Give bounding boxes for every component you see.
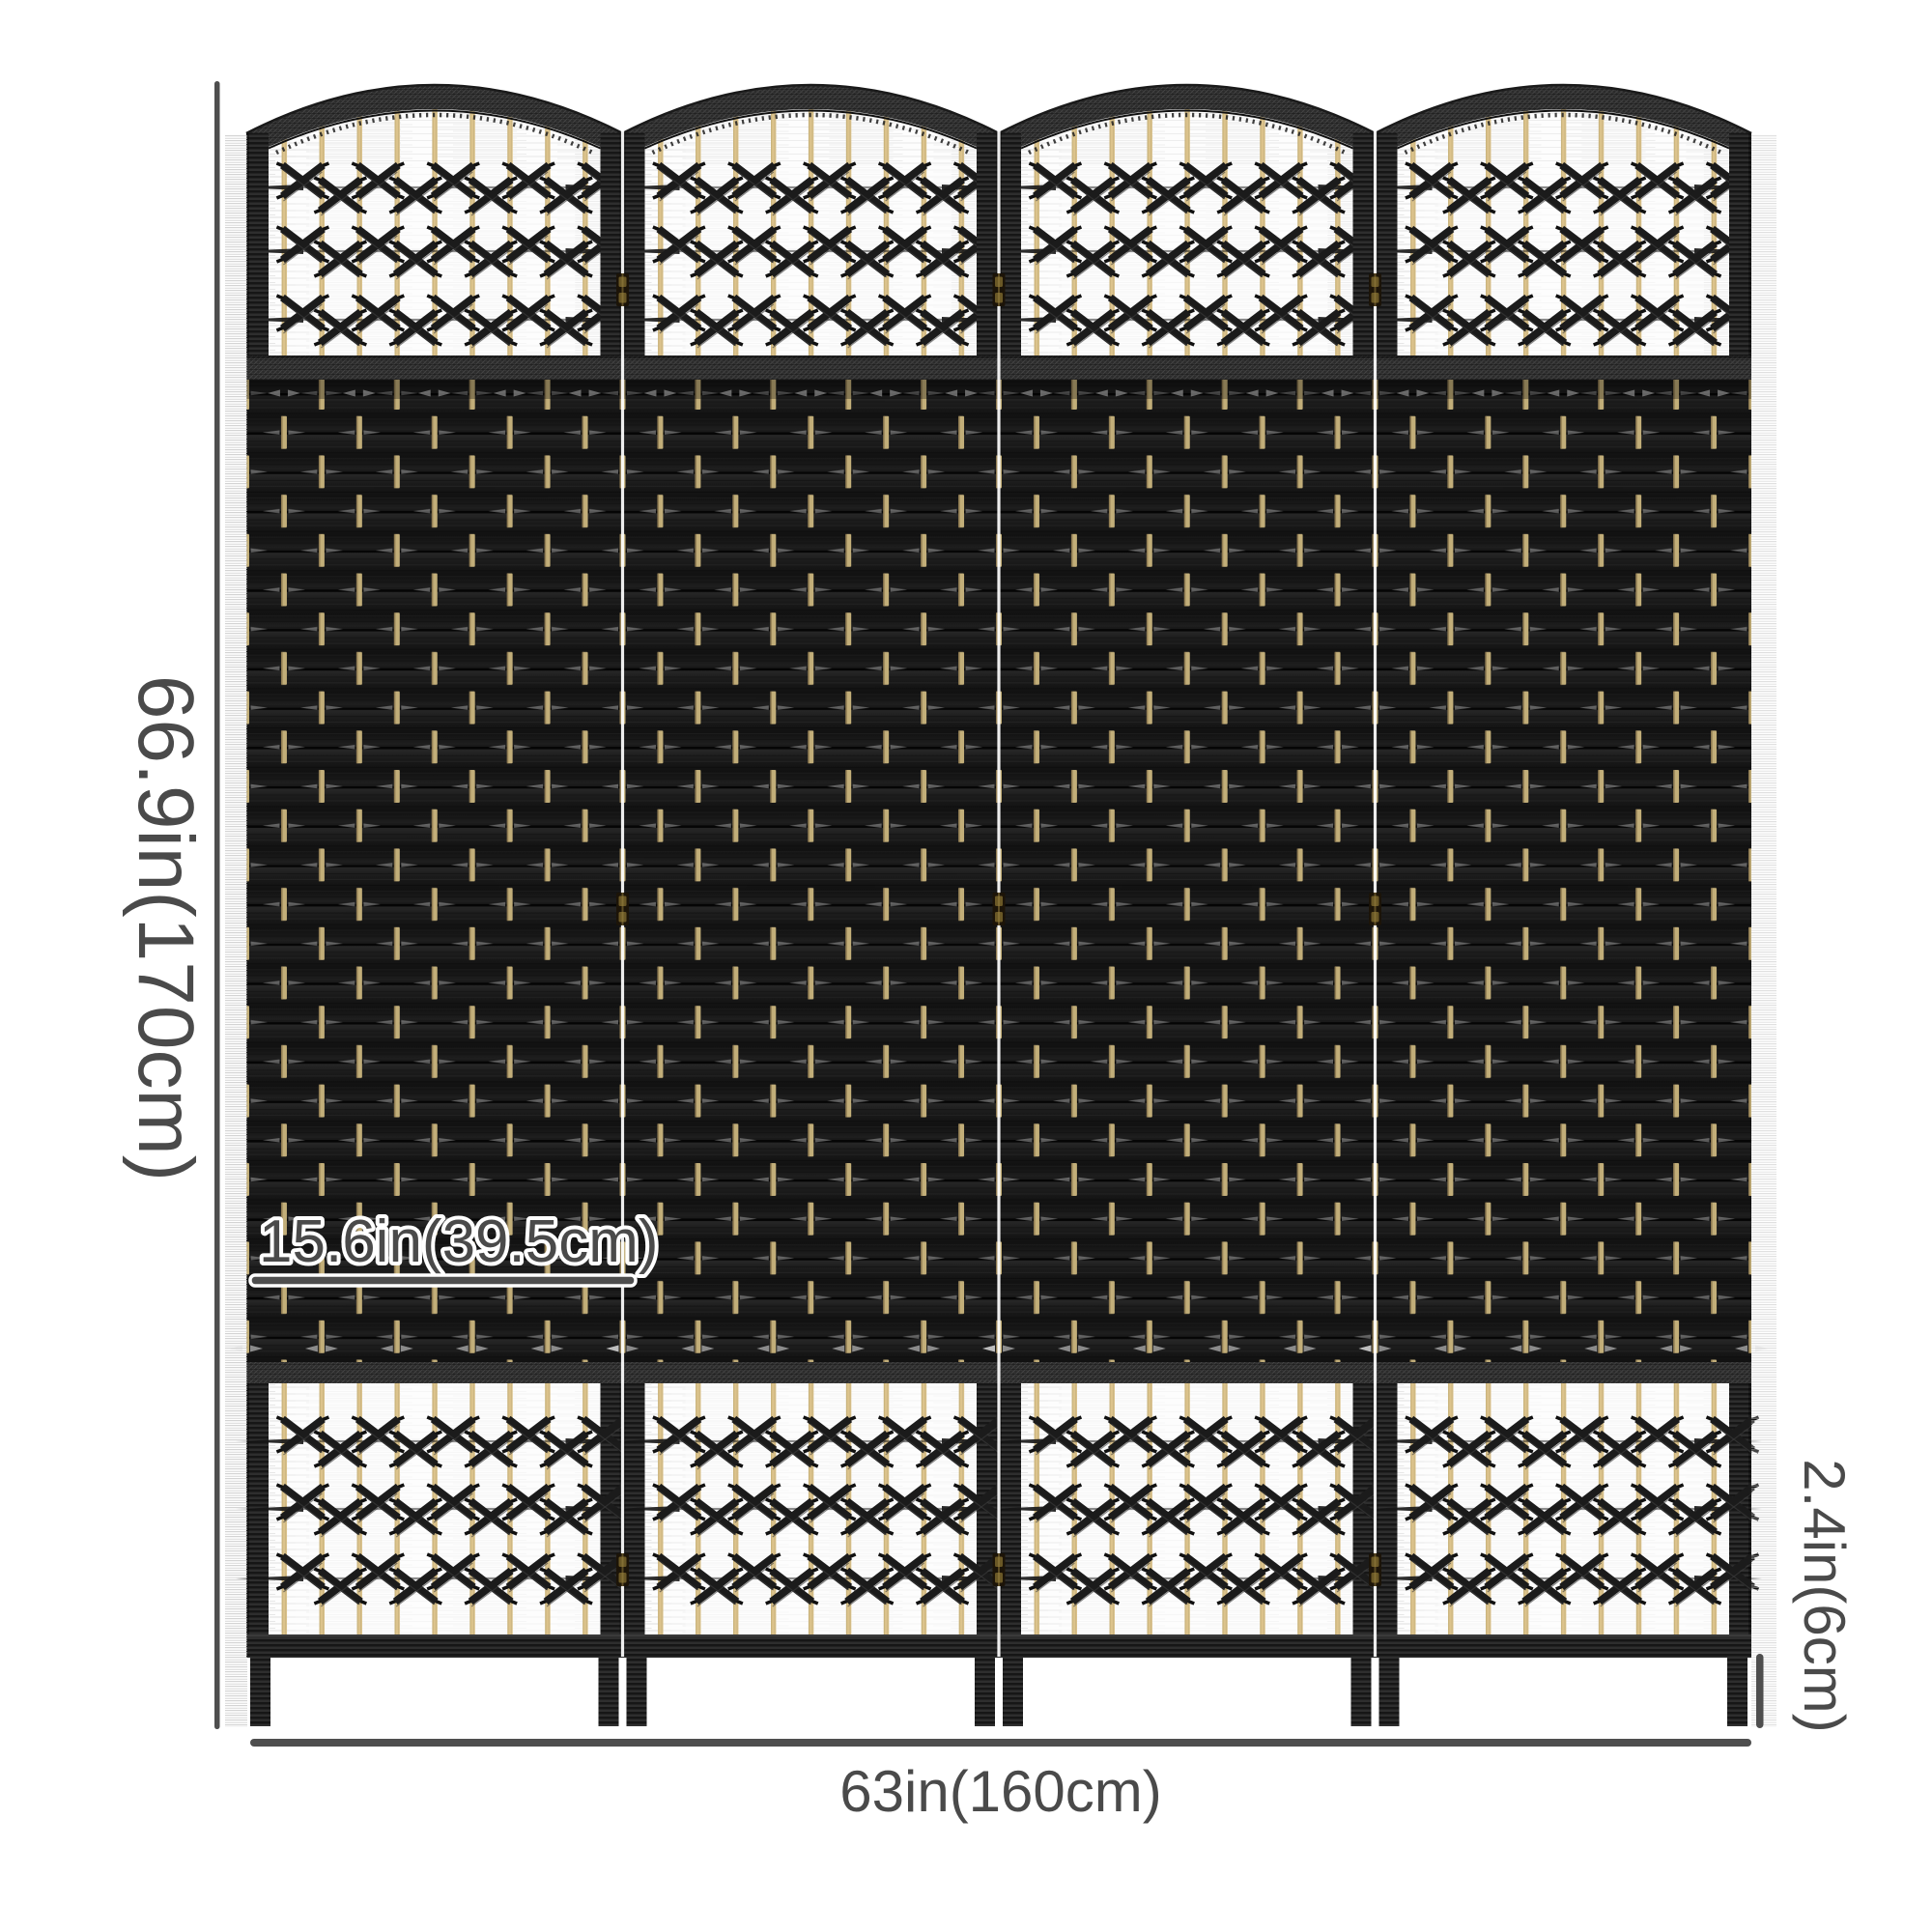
svg-text:2.4in(6cm): 2.4in(6cm) (1792, 1459, 1857, 1732)
svg-text:63in(160cm): 63in(160cm) (839, 1759, 1162, 1824)
svg-text:66.9in(170cm): 66.9in(170cm) (122, 675, 210, 1181)
svg-text:15.6in(39.5cm): 15.6in(39.5cm) (259, 1208, 659, 1275)
